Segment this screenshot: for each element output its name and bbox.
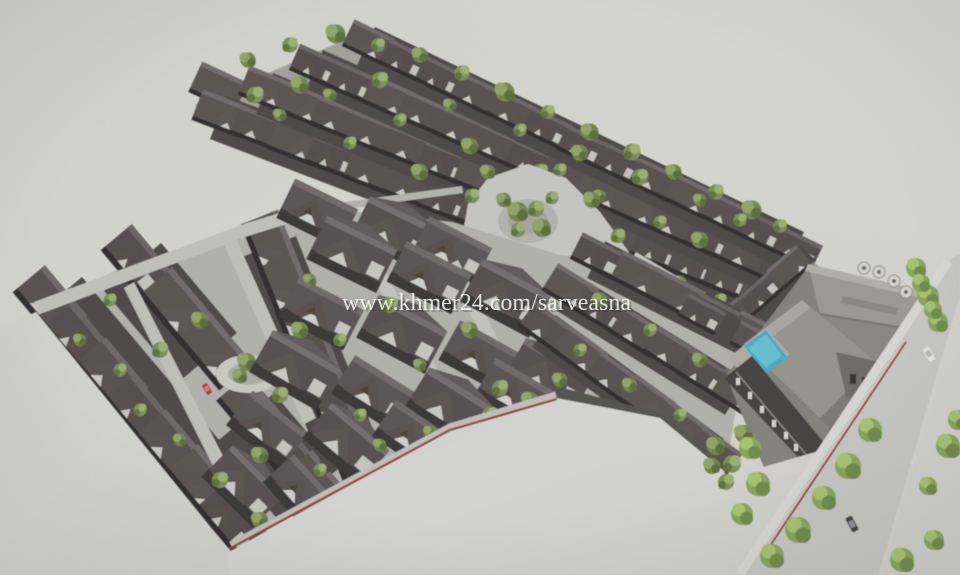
svg-text:www.khmer24.com/sarveasna: www.khmer24.com/sarveasna xyxy=(342,290,631,316)
